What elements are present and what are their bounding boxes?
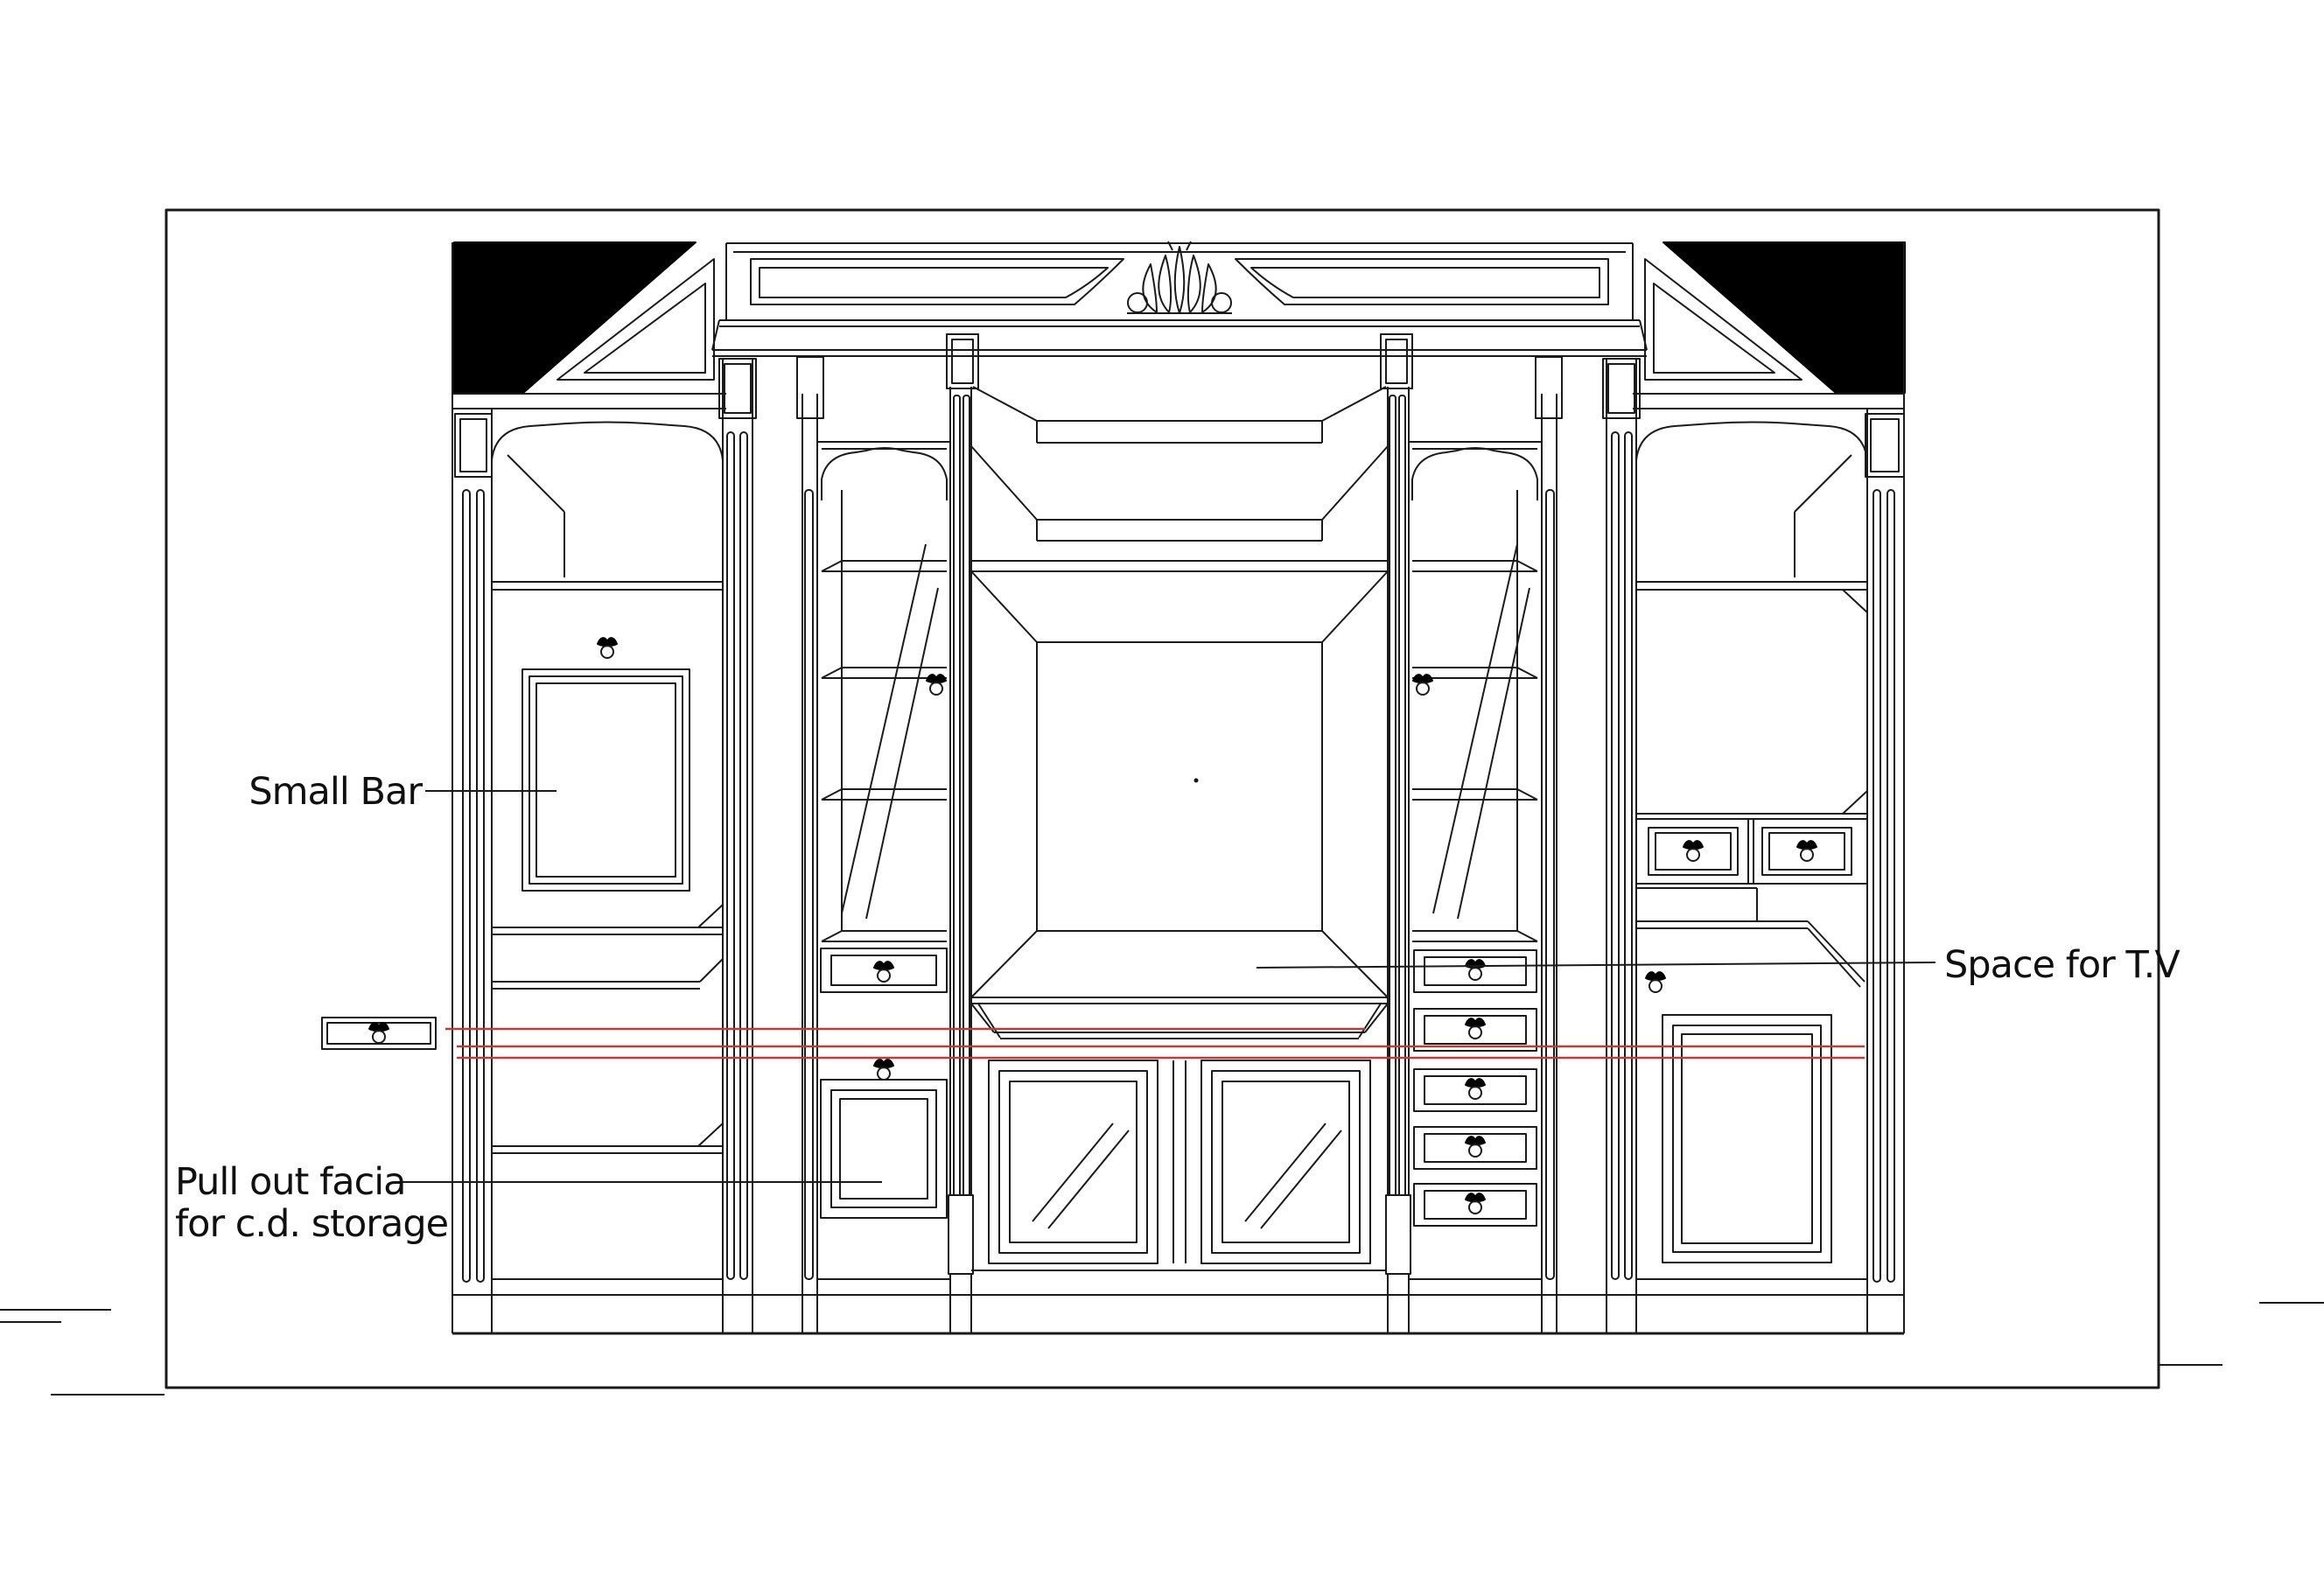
ring-pull-icon — [1466, 1193, 1485, 1214]
ring-pull-icon — [1683, 841, 1703, 861]
ring-pull-icon — [927, 675, 946, 695]
plinth — [452, 1295, 1904, 1333]
ring-pull-icon — [1466, 1079, 1485, 1099]
ring-pull-icon — [1466, 1018, 1485, 1039]
cd-storage-facia-panel — [821, 1080, 947, 1218]
right-bookcase-column — [1381, 334, 1562, 1295]
cabinet-elevation-drawing: Small Bar Pull out facia for c.d. storag… — [0, 0, 2324, 1595]
ring-pull-icon — [1413, 675, 1432, 695]
ring-pull-icon — [1466, 1137, 1485, 1157]
center-tv-bay — [971, 387, 1388, 1270]
glass-door-right — [1201, 1060, 1370, 1263]
ring-pull-icon — [874, 962, 893, 982]
ring-pull-icon — [1646, 972, 1665, 992]
ring-pull-icon — [598, 638, 617, 658]
crown-entablature — [712, 241, 1647, 356]
pull-out-facia-label-line1: Pull out facia — [175, 1160, 406, 1204]
left-bay — [452, 242, 756, 1333]
tv-leader-line — [1256, 962, 1935, 968]
tv-recess — [971, 571, 1388, 997]
drawer-stack — [1414, 950, 1536, 1226]
lower-door-panel — [1662, 1015, 1831, 1263]
left-bookcase-column — [797, 334, 978, 1295]
pulled-out-drawer — [322, 1018, 436, 1049]
ring-pull-icon — [1797, 841, 1816, 861]
ring-pull-icon — [874, 1060, 893, 1080]
small-bar-panel — [522, 669, 689, 891]
small-bar-label: Small Bar — [248, 770, 423, 814]
pull-out-facia-label-line2: for c.d. storage — [175, 1202, 448, 1246]
ring-pull-icon — [1466, 960, 1485, 980]
space-for-tv-label: Space for T.V — [1944, 943, 2180, 987]
right-bay — [1603, 242, 1904, 1333]
glass-door-left — [989, 1060, 1158, 1263]
drawing-page: Small Bar Pull out facia for c.d. storag… — [0, 0, 2324, 1595]
ring-pull-icon — [369, 1023, 388, 1043]
